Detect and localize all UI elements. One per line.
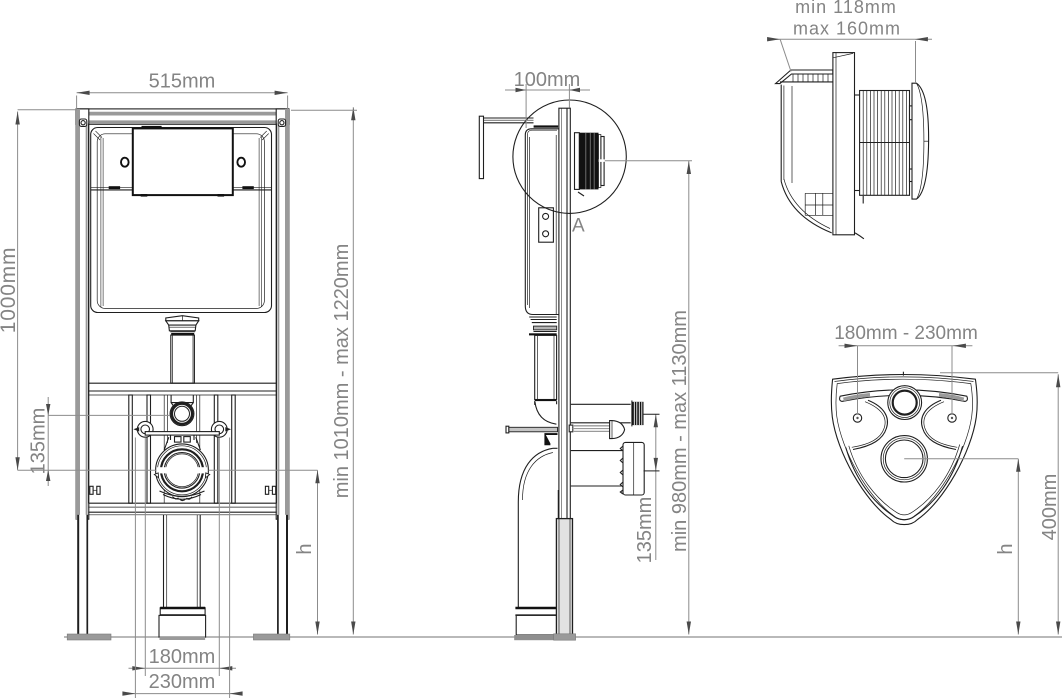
svg-text:min 118mm: min 118mm	[795, 0, 897, 17]
svg-text:max 160mm: max 160mm	[793, 19, 901, 39]
svg-text:135mm: 135mm	[634, 497, 656, 564]
svg-text:100mm: 100mm	[514, 69, 581, 91]
svg-text:h: h	[294, 543, 316, 554]
svg-text:180mm - 230mm: 180mm - 230mm	[834, 323, 978, 344]
svg-text:A: A	[572, 216, 585, 237]
svg-text:1000mm: 1000mm	[0, 247, 20, 334]
svg-text:h: h	[995, 543, 1017, 554]
svg-text:135mm: 135mm	[28, 408, 50, 475]
svg-text:min 1010mm - max 1220mm: min 1010mm - max 1220mm	[331, 244, 353, 499]
svg-text:min 980mm - max 1130mm: min 980mm - max 1130mm	[669, 310, 691, 552]
svg-text:230mm: 230mm	[149, 671, 216, 693]
svg-text:400mm: 400mm	[1039, 474, 1061, 541]
svg-text:515mm: 515mm	[149, 71, 216, 93]
svg-text:180mm: 180mm	[149, 646, 216, 668]
